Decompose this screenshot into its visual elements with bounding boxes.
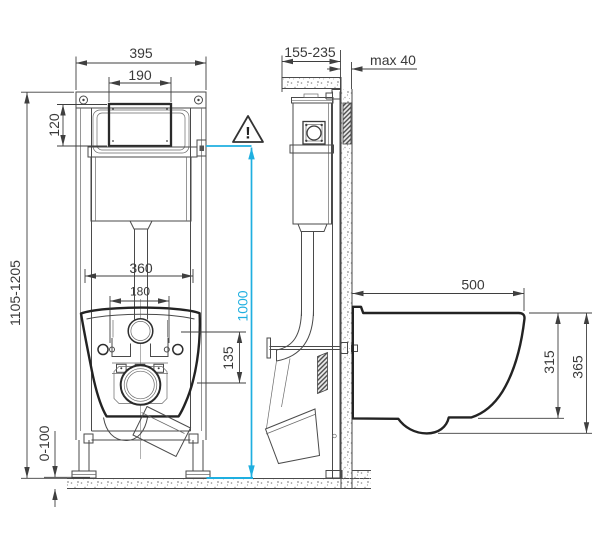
bowl-rim-dip — [104, 418, 148, 441]
installation-diagram: 395 190 120 1105-1205 360 180 135 0-100 — [0, 0, 600, 546]
bowl-outline-side — [353, 307, 525, 434]
dim-bowl-depth: 500 — [461, 277, 485, 293]
supply-connection — [128, 319, 153, 344]
cistern-bracket-side — [290, 145, 334, 153]
dim-height-range: 1105-1205 — [7, 260, 23, 326]
dim-inner-width: 360 — [129, 260, 153, 276]
finish-layer-top-section — [282, 78, 341, 89]
flush-plate-side — [303, 122, 325, 145]
wall-sleeve — [318, 353, 328, 394]
flush-funnel — [130, 221, 152, 229]
warning-exclamation: ! — [245, 124, 251, 143]
technical-drawing-svg: 395 190 120 1105-1205 360 180 135 0-100 — [0, 0, 600, 546]
dim-foot-range: 0-100 — [36, 425, 52, 461]
cistern-front — [91, 157, 191, 221]
frame-screw-left-icon — [80, 96, 88, 104]
frame-legs — [72, 440, 210, 478]
dim-bolt-spacing: 180 — [130, 285, 150, 299]
mounting-bar — [88, 147, 197, 157]
side-dimensions: 155-235 max 40 500 315 365 — [282, 44, 592, 433]
dim-bowl-rear-height: 315 — [541, 350, 557, 374]
frame-screw-right-icon — [195, 96, 203, 104]
fixing-bolt-right — [164, 345, 183, 355]
side-view-structure — [266, 78, 525, 489]
front-dimensions: 395 190 120 1105-1205 360 180 135 0-100 — [7, 45, 246, 507]
dim-overall-width: 395 — [129, 45, 153, 61]
floor-section — [67, 479, 371, 489]
front-view-bowl — [81, 299, 200, 459]
actuation-height-highlight: 1000 ! — [206, 116, 263, 478]
warning-icon: ! — [233, 116, 263, 143]
waste-elbow-side — [266, 409, 320, 464]
wall-section — [341, 89, 352, 488]
dim-outlet-offset: 135 — [220, 346, 236, 370]
dim-bowl-total-height: 365 — [570, 355, 586, 379]
flush-elbow-side — [267, 309, 314, 428]
dim-finish-max: max 40 — [370, 52, 416, 68]
finish-panel-max40 — [343, 103, 351, 144]
drain-outlet — [121, 365, 161, 405]
dim-plate-height: 120 — [46, 113, 62, 137]
dim-plate-width: 190 — [128, 67, 152, 83]
dim-depth-range: 155-235 — [284, 44, 336, 60]
dim-actuation-height: 1000 — [235, 290, 251, 321]
